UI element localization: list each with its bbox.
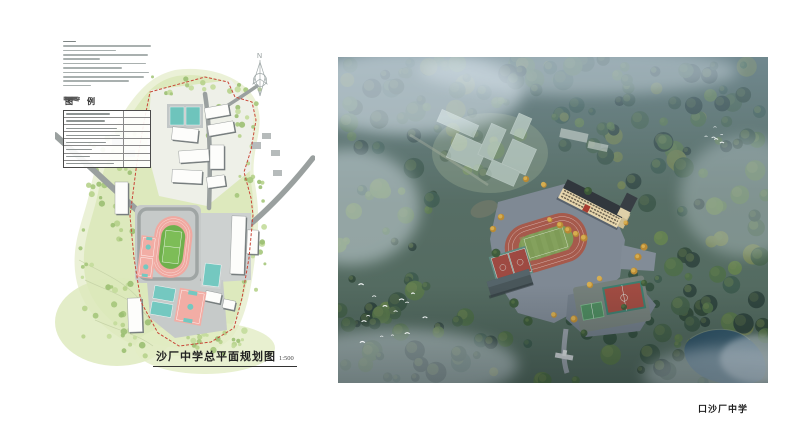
- legend-row: [64, 132, 150, 139]
- legend-symbol-centerline: [123, 139, 150, 145]
- drawing-title: 沙厂中学总平面规划图1:500: [153, 347, 297, 367]
- legend-row: [64, 139, 150, 146]
- legend-row: [64, 125, 150, 132]
- legend-symbol-slope: [123, 161, 150, 167]
- rendering-canvas: [338, 57, 768, 383]
- legend-table: [63, 110, 151, 168]
- legend-row: [64, 118, 150, 125]
- notes-text-block: [63, 38, 155, 89]
- legend-row: [64, 161, 150, 167]
- legend-row: [64, 146, 150, 153]
- legend: 图 例: [63, 96, 155, 168]
- legend-symbol-retaining: [123, 132, 150, 138]
- legend-symbol-contour: [123, 125, 150, 131]
- presentation-board: N 图 例: [0, 0, 800, 440]
- vignette: [338, 57, 768, 383]
- north-label: N: [257, 53, 262, 60]
- plan-east-court: [200, 261, 223, 289]
- site-plan-drawing: N 图 例: [55, 30, 315, 390]
- legend-row: [64, 154, 150, 161]
- north-arrow-icon: N: [253, 53, 267, 96]
- legend-row: [64, 111, 150, 118]
- legend-symbol-boundary: [123, 111, 150, 117]
- drawing-title-text: 沙厂中学总平面规划图: [156, 351, 276, 363]
- legend-symbol-building: [123, 154, 150, 160]
- drawing-scale: 1:500: [279, 355, 294, 362]
- legend-symbol-road: [123, 146, 150, 152]
- project-caption: 口沙厂中学: [698, 402, 748, 415]
- aerial-rendering: [338, 57, 768, 383]
- legend-symbol-elevation: [123, 118, 150, 124]
